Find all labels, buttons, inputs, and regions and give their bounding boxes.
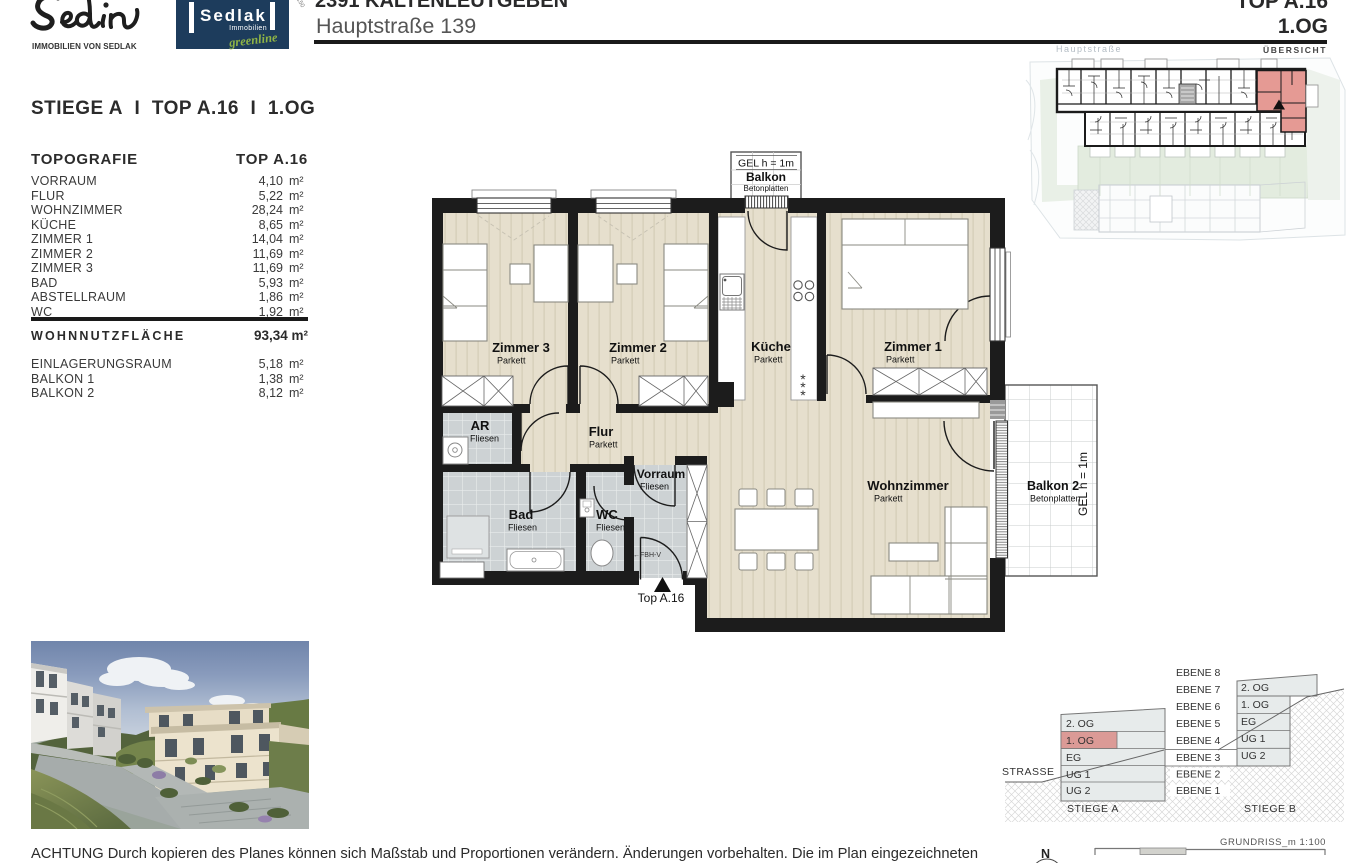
svg-text:EBENE 6: EBENE 6 [1176,701,1221,713]
svg-text:EBENE 2: EBENE 2 [1176,769,1221,781]
svg-text:EBENE 3: EBENE 3 [1176,752,1221,764]
svg-text:2. OG: 2. OG [1241,682,1269,694]
svg-text:UG 2: UG 2 [1241,750,1266,762]
svg-text:EBENE 8: EBENE 8 [1176,667,1221,679]
svg-text:STIEGE B: STIEGE B [1244,803,1296,815]
svg-text:EG: EG [1066,752,1081,764]
svg-text:EG: EG [1241,716,1256,728]
svg-text:STIEGE A: STIEGE A [1067,803,1119,815]
svg-text:2. OG: 2. OG [1066,718,1094,730]
svg-text:EBENE 4: EBENE 4 [1176,735,1221,747]
svg-text:UG 1: UG 1 [1241,733,1266,745]
svg-text:GRUNDRISS_m 1:100: GRUNDRISS_m 1:100 [1220,837,1326,848]
svg-text:UG 2: UG 2 [1066,785,1091,797]
svg-text:UG 1: UG 1 [1066,769,1091,781]
svg-text:1. OG: 1. OG [1066,735,1094,747]
svg-text:EBENE 5: EBENE 5 [1176,718,1221,730]
svg-text:1. OG: 1. OG [1241,699,1269,711]
svg-text:EBENE 7: EBENE 7 [1176,684,1221,696]
svg-text:EBENE 1: EBENE 1 [1176,785,1221,797]
svg-text:STRASSE: STRASSE [1002,766,1055,778]
